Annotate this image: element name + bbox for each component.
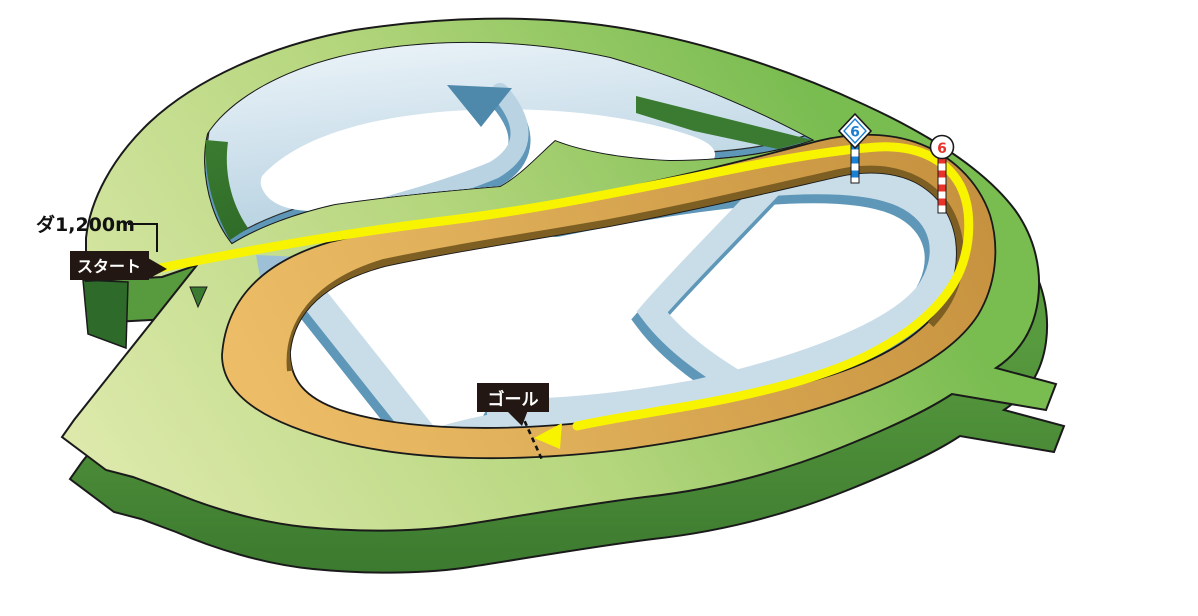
distance-label: ダ1,200m [36, 213, 135, 236]
start-chute-wall [83, 280, 128, 348]
furlong-number-red: 6 [937, 141, 947, 157]
course-map: ゴール ダ1,200m スタート 6 6 [0, 0, 1198, 616]
goal-label: ゴール [488, 389, 539, 410]
course-map-stage: ゴール ダ1,200m スタート 6 6 [0, 0, 1198, 616]
start-label: スタート [77, 257, 141, 276]
furlong-number-blue: 6 [850, 125, 860, 141]
